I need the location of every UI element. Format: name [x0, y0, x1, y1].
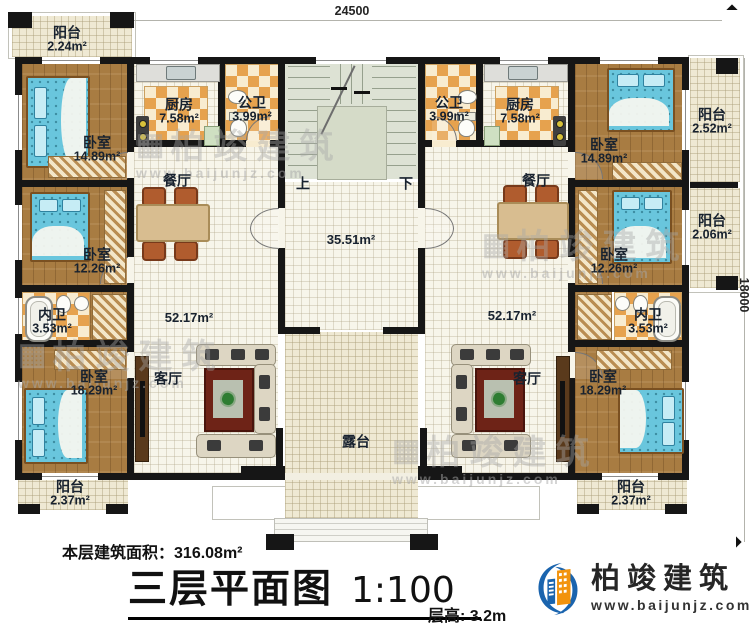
dining-chair — [142, 241, 166, 261]
wall — [418, 248, 425, 334]
watermark: 柏竣建筑www.baijunjz.com — [482, 230, 688, 280]
room-label-balcony-top-right: 阳台2.52m² — [692, 108, 732, 137]
column-block — [110, 12, 134, 28]
porch-column — [410, 534, 438, 550]
window — [15, 95, 22, 150]
watermark: 柏竣建筑www.baijunjz.com — [392, 436, 598, 486]
window — [316, 57, 386, 64]
room-label-bedroom-top-left: 卧室14.89m² — [74, 136, 121, 165]
kitchen-sink — [508, 66, 538, 80]
room-label-inner-bath-left: 内卫3.53m² — [32, 308, 72, 337]
room-label-balcony-bottom-right: 阳台2.37m² — [611, 480, 651, 509]
bed — [24, 388, 88, 464]
wall — [383, 327, 425, 334]
room-label-kitchen-right: 厨房7.58m² — [500, 98, 540, 127]
wall — [276, 428, 283, 473]
cursor-artifact — [726, 4, 737, 15]
room-label-public-bath-right: 公卫3.99m² — [429, 96, 469, 125]
dimension-height: 18000 — [737, 278, 750, 313]
room-label-kitchen-left: 厨房7.58m² — [159, 98, 199, 127]
room-label-bedroom-bottom-left: 卧室18.29m² — [71, 370, 118, 399]
room-label-bedroom-mid-right: 卧室12.26m² — [591, 248, 638, 277]
room-label-bedroom-bottom-right: 卧室18.29m² — [580, 370, 627, 399]
wall — [476, 57, 483, 147]
door-gap — [278, 208, 285, 248]
sofa — [451, 344, 531, 366]
room-label-balcony-top-left: 阳台2.24m² — [47, 26, 87, 55]
door-gap — [418, 208, 425, 248]
porch-column — [266, 534, 294, 550]
watermark: 柏竣建筑www.baijunjz.com — [18, 340, 224, 390]
living-left-area-label: 52.17m² — [165, 311, 213, 325]
window — [150, 57, 198, 64]
door-gap — [432, 140, 456, 147]
window — [15, 205, 22, 260]
hall-area-label: 35.51m² — [327, 233, 375, 247]
wall — [575, 180, 689, 187]
cursor-artifact — [730, 536, 741, 547]
hall-floor — [285, 182, 418, 330]
brand-name: 柏竣建筑 — [591, 565, 750, 594]
room-label-living-right: 客厅 — [513, 371, 541, 386]
room-label-living-left: 客厅 — [154, 371, 182, 386]
wall — [278, 248, 285, 334]
column-block — [716, 276, 738, 290]
floor-plan-canvas: 柏竣建筑www.baijunjz.com 柏竣建筑www.baijunjz.co… — [0, 0, 750, 635]
kitchen-sink — [166, 66, 196, 80]
watermark-logo-icon — [392, 451, 426, 468]
column-block — [665, 504, 687, 514]
stair-down-label: 下 — [399, 176, 413, 191]
wall — [15, 285, 127, 292]
stove — [553, 116, 566, 146]
wardrobe — [596, 350, 672, 370]
stair-break-tick — [331, 87, 347, 90]
room-label-bedroom-mid-left: 卧室12.26m² — [74, 248, 121, 277]
watermark-logo-icon — [482, 245, 516, 262]
window — [500, 57, 548, 64]
room-label-public-bath-left: 公卫3.99m² — [232, 96, 272, 125]
column-block — [577, 504, 599, 514]
window — [42, 57, 100, 64]
sofa — [196, 434, 276, 458]
window — [600, 57, 658, 64]
living-right-area-label: 52.17m² — [488, 309, 536, 323]
door-gap — [127, 257, 134, 283]
drawing-title: 三层平面图 — [128, 558, 333, 614]
sofa — [451, 364, 473, 434]
stair-break-tick — [354, 91, 370, 94]
wall — [278, 327, 320, 334]
column-block — [716, 58, 738, 74]
wall — [575, 285, 689, 292]
room-label-inner-bath-right: 内卫3.53m² — [628, 308, 668, 337]
column-block — [18, 504, 40, 514]
entrance-steps — [274, 518, 428, 542]
watermark-logo-icon — [136, 145, 170, 162]
room-label-terrace: 露台 — [342, 434, 370, 449]
room-label-balcony-bottom-left: 阳台2.37m² — [50, 480, 90, 509]
closet-shelving — [92, 294, 127, 340]
brand-url: www.baijunjz.com — [591, 597, 750, 613]
sofa — [254, 364, 276, 434]
room-label-balcony-mid-right: 阳台2.06m² — [692, 214, 732, 243]
room-label-dining-left: 餐厅 — [163, 173, 191, 188]
column-block — [8, 12, 32, 28]
brand-logo: 柏竣建筑 www.baijunjz.com — [533, 560, 750, 618]
room-label-bedroom-top-right: 卧室14.89m² — [581, 138, 628, 167]
door-gap — [127, 152, 134, 178]
brand-logo-icon — [533, 560, 583, 618]
floor-height-note: 层高: 3.2m — [428, 602, 506, 626]
terrace-floor — [285, 332, 418, 518]
closet-shelving — [577, 294, 612, 340]
bed — [618, 388, 684, 454]
kitchen-cabinet — [484, 126, 500, 146]
dimension-width: 24500 — [335, 4, 370, 18]
balcony-divider-wall — [690, 182, 738, 188]
wall — [418, 57, 425, 210]
stair-up-label: 上 — [296, 176, 310, 191]
door-gap — [568, 152, 575, 178]
bathroom-sink — [74, 296, 89, 311]
room-label-dining-right: 餐厅 — [522, 173, 550, 188]
column-block — [106, 504, 128, 514]
wall — [15, 180, 127, 187]
dining-table — [136, 204, 210, 242]
watermark-logo-icon — [18, 355, 52, 372]
window — [682, 90, 689, 150]
window — [15, 298, 22, 334]
bed — [607, 68, 675, 132]
dining-chair — [174, 241, 198, 261]
